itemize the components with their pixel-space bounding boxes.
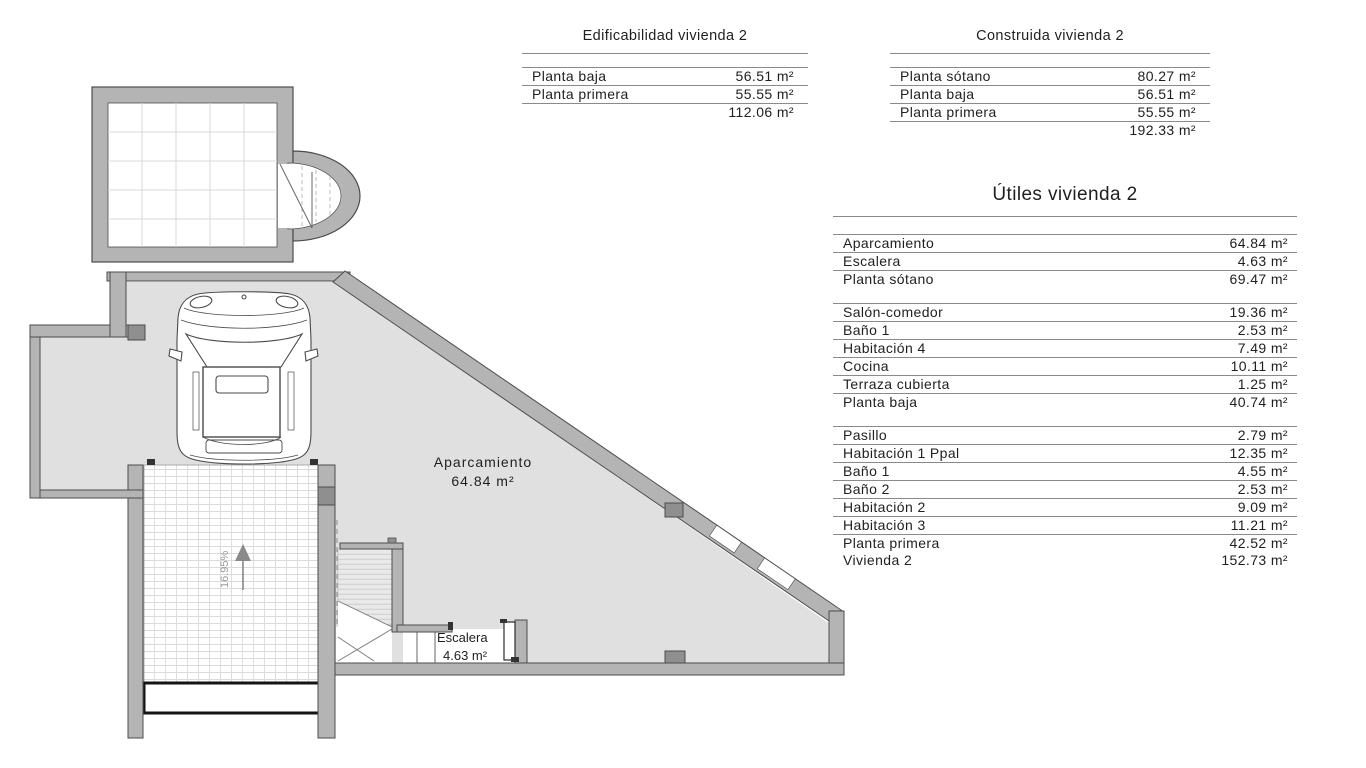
curved-stair-bay <box>278 151 360 241</box>
wall-top <box>107 272 350 281</box>
row-value: 64.84 m² <box>1230 236 1297 250</box>
table-row: Planta baja 56.51 m² <box>890 85 1210 103</box>
table-total-row: 112.06 m² <box>522 103 808 121</box>
aparcamiento-area-label: 64.84 m² <box>451 473 514 489</box>
wall-main-left <box>110 272 126 337</box>
pillar-ramp-wall <box>318 487 335 505</box>
row-value: 11.21 m² <box>1231 518 1297 532</box>
table-row: Escalera 4.63 m² <box>833 252 1297 270</box>
table-group-sotano: Aparcamiento 64.84 m² Escalera 4.63 m² P… <box>833 234 1297 288</box>
table-row: Planta primera 55.55 m² <box>890 103 1210 121</box>
row-label: Baño 1 <box>833 464 890 478</box>
row-value: 42.52 m² <box>1230 536 1297 550</box>
table-construida: Construida vivienda 2 Planta sótano 80.2… <box>890 28 1210 139</box>
pillar-bottom <box>665 651 685 663</box>
row-label: Habitación 3 <box>833 518 926 532</box>
row-label: Pasillo <box>833 428 887 442</box>
table-grand-total-row: Vivienda 2 152.73 m² <box>833 552 1297 569</box>
row-label: Baño 2 <box>833 482 890 496</box>
table-row: Baño 1 2.53 m² <box>833 321 1297 339</box>
table-row: Baño 2 2.53 m² <box>833 480 1297 498</box>
row-label: Planta baja <box>890 87 974 101</box>
table-row: Planta sótano 69.47 m² <box>833 270 1297 288</box>
row-value: 56.51 m² <box>736 69 808 83</box>
floorplan-page: { "plan": { "labels": { "aparcamiento_na… <box>0 0 1366 768</box>
table-total: 192.33 m² <box>1129 123 1210 137</box>
table-title: Edificabilidad vivienda 2 <box>522 28 808 54</box>
row-label: Habitación 2 <box>833 500 926 514</box>
wall-bumpout-bottom <box>30 490 143 498</box>
row-value: 10.11 m² <box>1231 359 1297 373</box>
row-value: 12.35 m² <box>1230 446 1297 460</box>
table-row: Planta primera 42.52 m² <box>833 534 1297 552</box>
row-label: Salón-comedor <box>833 305 943 319</box>
table-group-baja: Salón-comedor 19.36 m² Baño 1 2.53 m² Ha… <box>833 303 1297 411</box>
table-row: Baño 1 4.55 m² <box>833 462 1297 480</box>
row-value: 152.73 m² <box>1221 553 1297 567</box>
table-row: Cocina 10.11 m² <box>833 357 1297 375</box>
ramp-slope-label: 16.95% <box>219 550 231 588</box>
table-row: Planta baja 40.74 m² <box>833 393 1297 411</box>
row-label: Planta baja <box>833 395 917 409</box>
stair-landing-hatch <box>338 549 392 627</box>
table-total: 112.06 m² <box>728 105 808 119</box>
ramp-door-jamb-right <box>310 459 318 465</box>
wall-bumpout-left <box>30 325 40 498</box>
table-row: Aparcamiento 64.84 m² <box>833 234 1297 252</box>
ramp-door-jamb-left <box>147 459 155 465</box>
row-label: Habitación 4 <box>833 341 926 355</box>
row-label: Escalera <box>833 254 901 268</box>
row-value: 2.79 m² <box>1238 428 1297 442</box>
row-label: Planta primera <box>522 87 629 101</box>
table-row: Pasillo 2.79 m² <box>833 426 1297 444</box>
escalera-label: Escalera <box>437 630 488 645</box>
table-row: Habitación 4 7.49 m² <box>833 339 1297 357</box>
row-label: Planta primera <box>890 105 997 119</box>
table-edificabilidad: Edificabilidad vivienda 2 Planta baja 56… <box>522 28 808 121</box>
garage-ramp: 16.95% <box>144 459 320 713</box>
row-value: 80.27 m² <box>1138 69 1210 83</box>
wall-stair-vertical <box>392 543 403 632</box>
row-value: 55.55 m² <box>1138 105 1210 119</box>
row-value: 4.63 m² <box>1238 254 1297 268</box>
table-row: Planta baja 56.51 m² <box>522 67 808 85</box>
row-value: 4.55 m² <box>1238 464 1297 478</box>
stair-flight-diagonals <box>336 627 392 663</box>
pillar-left <box>128 325 145 340</box>
table-total-row: 192.33 m² <box>890 121 1210 139</box>
row-label: Planta sótano <box>890 69 991 83</box>
table-row: Terraza cubierta 1.25 m² <box>833 375 1297 393</box>
wall-ramp-right <box>318 465 335 738</box>
table-row: Habitación 3 11.21 m² <box>833 516 1297 534</box>
row-label: Cocina <box>833 359 889 373</box>
table-group-primera: Pasillo 2.79 m² Habitación 1 Ppal 12.35 … <box>833 426 1297 569</box>
row-label: Aparcamiento <box>833 236 934 250</box>
door-jamb-mark <box>448 622 453 630</box>
row-value: 56.51 m² <box>1138 87 1210 101</box>
row-value: 9.09 m² <box>1238 500 1297 514</box>
row-value: 1.25 m² <box>1238 377 1297 391</box>
wall-stair-top <box>340 543 403 549</box>
row-label: Terraza cubierta <box>833 377 950 391</box>
car-roof <box>203 367 280 437</box>
table-row: Habitación 1 Ppal 12.35 m² <box>833 444 1297 462</box>
row-label: Vivienda 2 <box>833 553 912 567</box>
row-label: Planta primera <box>833 536 940 550</box>
wall-bottom <box>335 663 844 675</box>
upper-room <box>92 87 360 262</box>
table-row: Salón-comedor 19.36 m² <box>833 303 1297 321</box>
row-value: 2.53 m² <box>1238 323 1297 337</box>
row-label: Habitación 1 Ppal <box>833 446 960 460</box>
row-value: 19.36 m² <box>1230 305 1297 319</box>
row-value: 7.49 m² <box>1238 341 1297 355</box>
wall-ramp-left <box>128 465 143 738</box>
table-row: Planta primera 55.55 m² <box>522 85 808 103</box>
row-label: Planta baja <box>522 69 606 83</box>
table-utiles: Útiles vivienda 2 Aparcamiento 64.84 m² … <box>833 184 1297 569</box>
aparcamiento-label: Aparcamiento <box>434 454 532 470</box>
escalera-area-label: 4.63 m² <box>443 648 488 663</box>
row-value: 69.47 m² <box>1230 272 1297 286</box>
pillar-diagonal <box>665 503 683 517</box>
row-value: 55.55 m² <box>736 87 808 101</box>
row-value: 40.74 m² <box>1230 395 1297 409</box>
row-value: 2.53 m² <box>1238 482 1297 496</box>
wall-escalera-right <box>515 620 527 663</box>
car-topview <box>169 292 318 464</box>
table-title: Construida vivienda 2 <box>890 28 1210 54</box>
table-row: Planta sótano 80.27 m² <box>890 67 1210 85</box>
table-title: Útiles vivienda 2 <box>833 184 1297 217</box>
row-label: Baño 1 <box>833 323 890 337</box>
garage-door <box>144 683 320 713</box>
row-label: Planta sótano <box>833 272 934 286</box>
wall-end-mark <box>388 538 396 543</box>
table-row: Habitación 2 9.09 m² <box>833 498 1297 516</box>
